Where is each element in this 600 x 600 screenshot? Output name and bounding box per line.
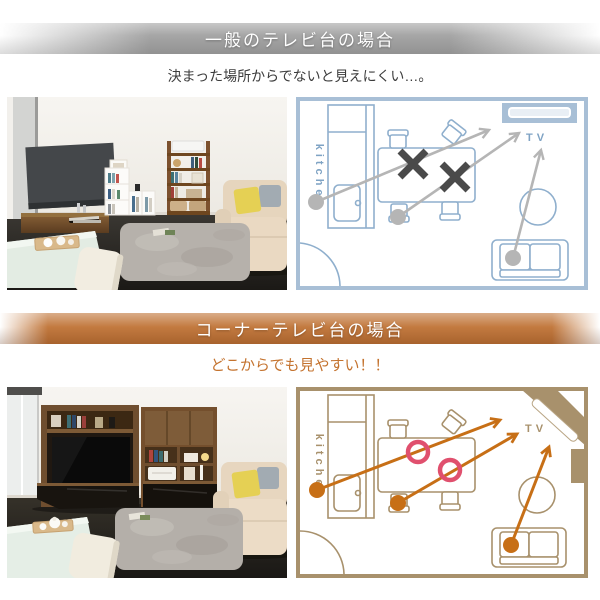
kitchen-counter [328,395,374,518]
chair [73,245,124,290]
viewer-dot-sofa [505,250,521,266]
subtitle-corner-tv: どこからでも見やすい！！ [0,354,600,375]
rug [120,223,250,281]
chair-top-right [440,409,467,435]
chair-top-left [388,130,408,148]
photo-corner-tv-room [7,387,287,578]
header-general-tv-label: 一般のテレビ台の場合 [205,26,395,51]
floorplan-corner: kitchen TV [296,387,588,578]
header-corner-tv-label: コーナーテレビ台の場合 [196,316,405,341]
header-general-tv: 一般のテレビ台の場合 [0,23,600,54]
photo-general-tv-room [7,97,287,290]
door-arc [300,531,344,574]
sofa [492,528,566,567]
sofa [492,240,568,280]
floorplan-general: kitchen TV [296,97,588,290]
tv-label: TV [526,132,548,144]
rug [115,508,243,570]
viewer-dot-kitchen [308,194,324,210]
tv-wall-unit [32,405,222,514]
window [7,387,42,495]
viewer-dot-sofa [503,537,519,553]
header-corner-tv: コーナーテレビ台の場合 [0,313,600,344]
kitchen-counter [328,105,374,228]
tv-label: TV [525,423,547,435]
chair-top-left [388,420,408,438]
viewer-dot-chair [390,495,406,511]
corner-tv-icon [522,390,586,483]
viewer-dot-kitchen [309,482,325,498]
tv [25,143,116,210]
chair-bottom-right [440,492,460,510]
chair [67,531,120,578]
chair-bottom-right [440,202,460,220]
tv-icon [502,103,577,123]
page: 一般のテレビ台の場合 決まった場所からでないと見えにくい…。 [0,0,600,600]
viewer-dot-chair [390,209,406,225]
subtitle-general-tv: 決まった場所からでないと見えにくい…。 [0,66,600,86]
door-arc [300,243,340,286]
